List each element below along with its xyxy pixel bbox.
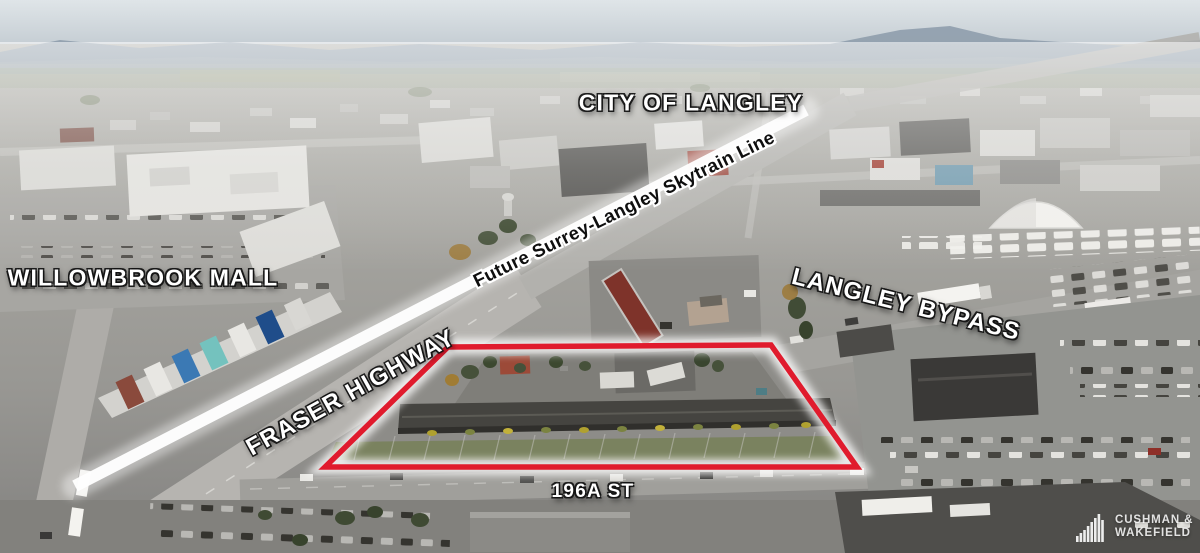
- 196a-st-label: 196A ST: [552, 481, 635, 503]
- cushman-wakefield-logo: CUSHMAN & WAKEFIELD: [1076, 512, 1193, 542]
- haze-overlay: [0, 42, 1200, 272]
- brand-name-line2: WAKEFIELD: [1115, 527, 1193, 540]
- brand-name-line1: CUSHMAN &: [1115, 514, 1193, 527]
- willowbrook-mall-label: WILLOWBROOK MALL: [8, 265, 279, 292]
- city-of-langley-label: CITY OF LANGLEY: [579, 90, 804, 117]
- bar-chart-logo-icon: [1076, 512, 1108, 542]
- aerial-site-photo: CITY OF LANGLEY WILLOWBROOK MALL Future …: [0, 0, 1200, 553]
